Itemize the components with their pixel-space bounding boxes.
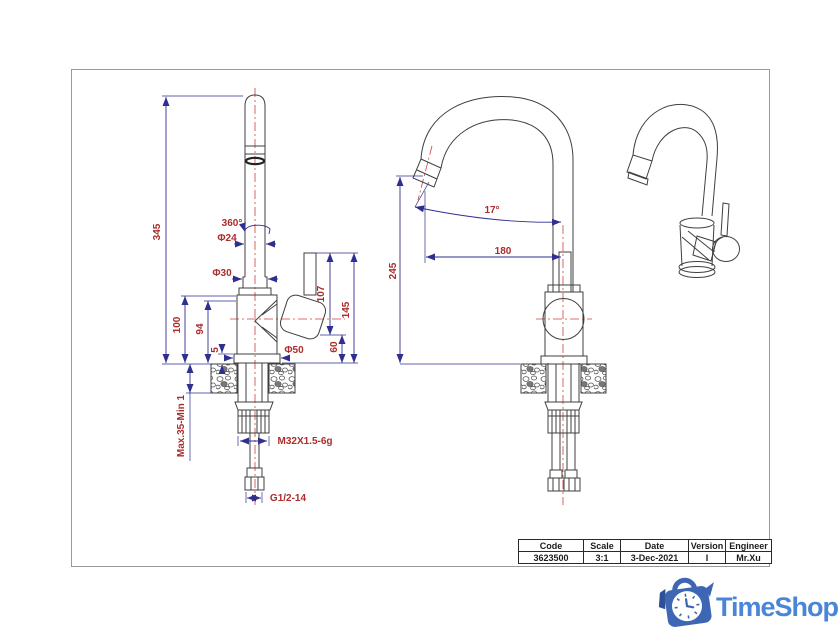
countertop-hatch-left <box>211 364 237 393</box>
dimension-label: 107 <box>316 285 327 302</box>
dimension-label: 100 <box>172 316 183 333</box>
dimension-label: 180 <box>495 246 512 257</box>
dimension-label: Φ50 <box>284 345 304 356</box>
dimension-label: 345 <box>152 223 163 240</box>
dimension-label: 17° <box>484 205 499 216</box>
title-col-code-header: Code <box>519 540 584 552</box>
logo-text: TimeShop <box>716 592 839 622</box>
dimension-label: 145 <box>341 301 352 318</box>
screenshot-root: 345360°Φ24Φ30100945Φ5010760145Max.35-Min… <box>0 0 840 640</box>
dimension-label: 60 <box>329 341 340 353</box>
countertop-hatch-left <box>521 364 546 393</box>
timeshop-logo: TimeShop <box>656 576 839 629</box>
title-col-code-value: 3623500 <box>519 552 584 564</box>
title-col-date-header: Date <box>621 540 689 552</box>
countertop-hatch-right <box>269 364 295 393</box>
dimension-label: Φ24 <box>217 233 237 244</box>
title-block-header-row: Code Scale Date Version Engineer <box>519 540 772 552</box>
dimension-label: G1/2-14 <box>270 493 307 504</box>
shopping-bag-clock-icon <box>656 576 720 629</box>
title-col-engineer-value: Mr.Xu <box>726 552 772 564</box>
dimension-label: 94 <box>195 323 206 335</box>
countertop-hatch-right <box>581 364 606 393</box>
title-block-value-row: 3623500 3:1 3-Dec-2021 I Mr.Xu <box>519 552 772 564</box>
title-block: Code Scale Date Version Engineer 3623500… <box>518 539 772 564</box>
title-col-date-value: 3-Dec-2021 <box>621 552 689 564</box>
dimension-label: Max.35-Min 1 <box>176 394 187 457</box>
title-col-scale-header: Scale <box>584 540 621 552</box>
dimension-label: M32X1.5-6g <box>277 436 332 447</box>
title-col-version-value: I <box>689 552 726 564</box>
dimension-label: 5 <box>210 347 221 353</box>
title-col-engineer-header: Engineer <box>726 540 772 552</box>
title-col-version-header: Version <box>689 540 726 552</box>
dimension-label: 245 <box>388 262 399 279</box>
dimension-label: 360° <box>222 218 243 229</box>
dimension-label: Φ30 <box>212 268 232 279</box>
title-col-scale-value: 3:1 <box>584 552 621 564</box>
